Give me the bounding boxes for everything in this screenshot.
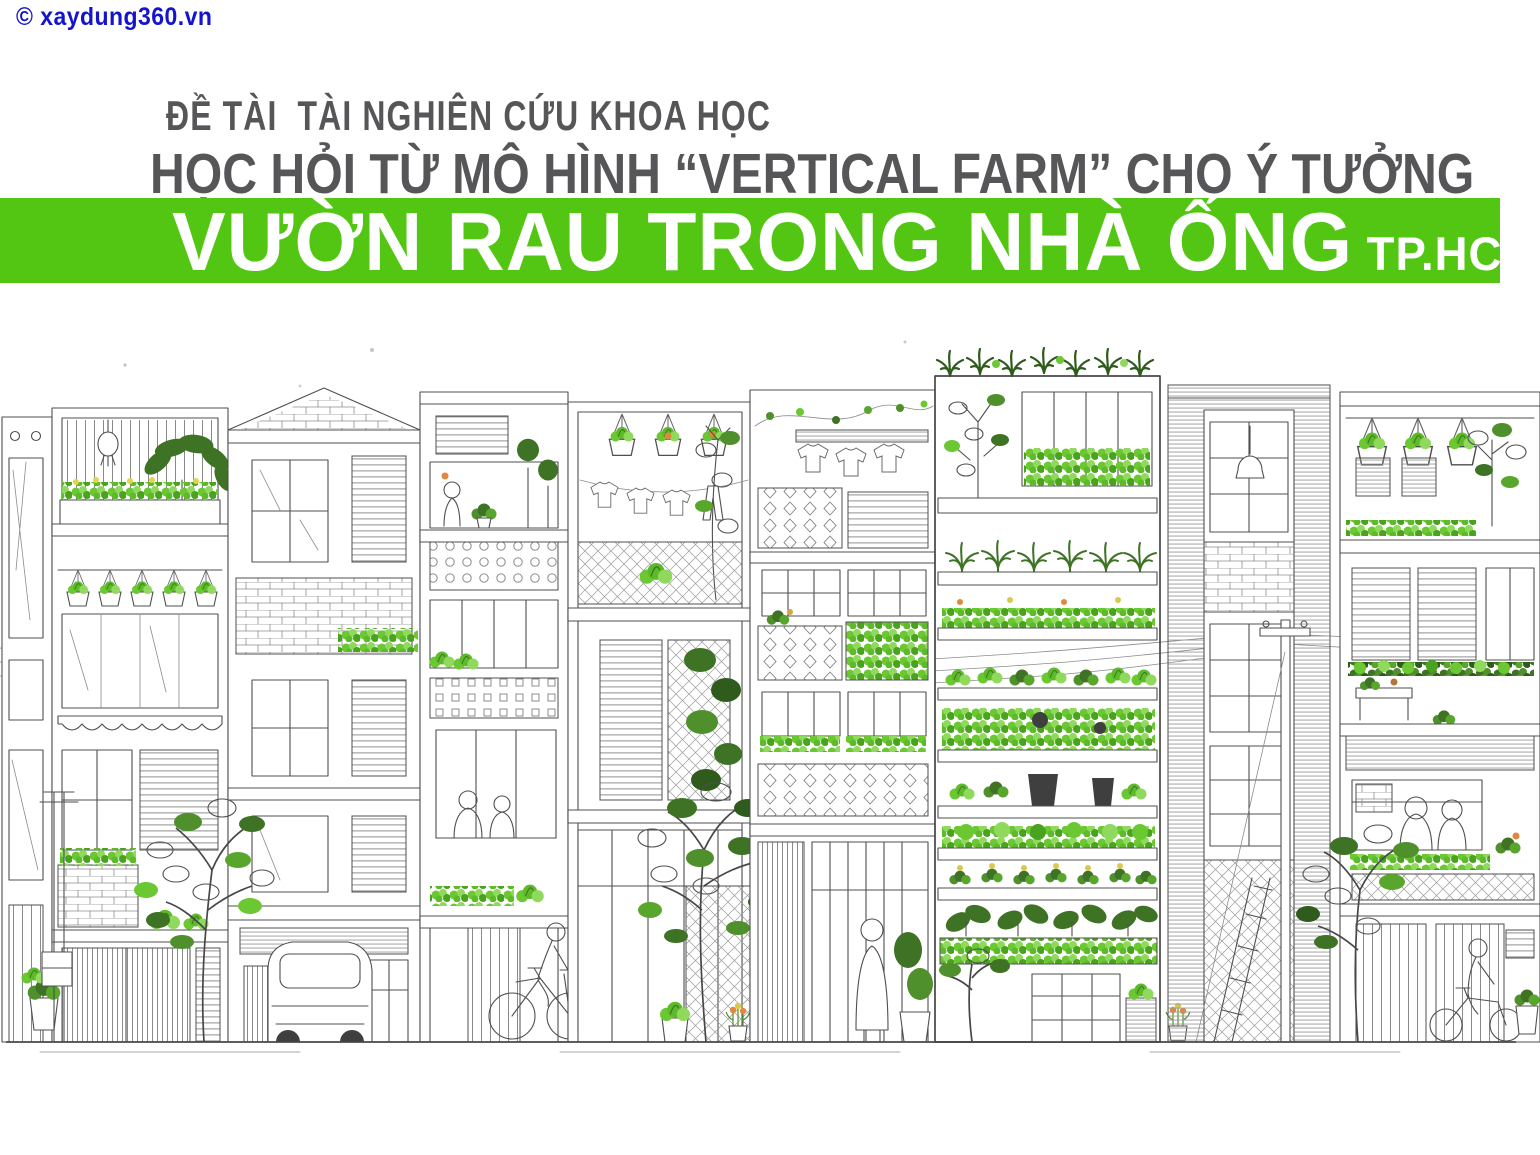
flower-box (60, 477, 220, 524)
title-banner: VƯỜN RAU TRONG NHÀ ỐNGTP.HCM (0, 198, 1500, 283)
green-wall-box (846, 622, 928, 680)
banner-main-title: VƯỜN RAU TRONG NHÀ ỐNG (172, 195, 1353, 288)
research-kicker: ĐỀ TÀI TÀI NGHIÊN CỨU KHOA HỌC (166, 92, 771, 140)
white-pot-right (1515, 990, 1540, 1035)
tube-house-1 (2, 417, 52, 1042)
curtain-storefront (62, 948, 220, 1042)
window-with-people (436, 730, 556, 838)
banner-text: VƯỜN RAU TRONG NHÀ ỐNGTP.HCM (172, 198, 1540, 283)
street-sketch-illustration (0, 330, 1540, 1060)
ground-line (6, 1042, 1516, 1052)
roof-plants (937, 348, 1153, 376)
banner-suffix: TP.HCM (1367, 227, 1540, 280)
slide: © xaydung360.vn ĐỀ TÀI TÀI NGHIÊN CỨU KH… (0, 0, 1540, 1155)
dark-leaf-row (942, 900, 1160, 936)
tube-house-6 (750, 390, 935, 1042)
vertical-farm-tower (935, 348, 1160, 1042)
lattice-rail (578, 542, 742, 604)
parked-car (268, 942, 372, 1042)
top-floor (944, 392, 1152, 498)
farm-shelves (938, 498, 1160, 964)
window-people-right (1352, 780, 1482, 850)
planter-box (1126, 984, 1156, 1043)
hedge-box (338, 628, 418, 652)
hedge-band (940, 938, 1157, 964)
brick-planter (58, 848, 138, 927)
tube-house-9 (1340, 392, 1540, 1042)
site-watermark: © xaydung360.vn (16, 3, 212, 32)
fruit-row (1348, 660, 1534, 676)
tube-house-4 (420, 392, 568, 1042)
tube-house-8 (1168, 385, 1330, 1042)
paper-specks (123, 341, 906, 388)
